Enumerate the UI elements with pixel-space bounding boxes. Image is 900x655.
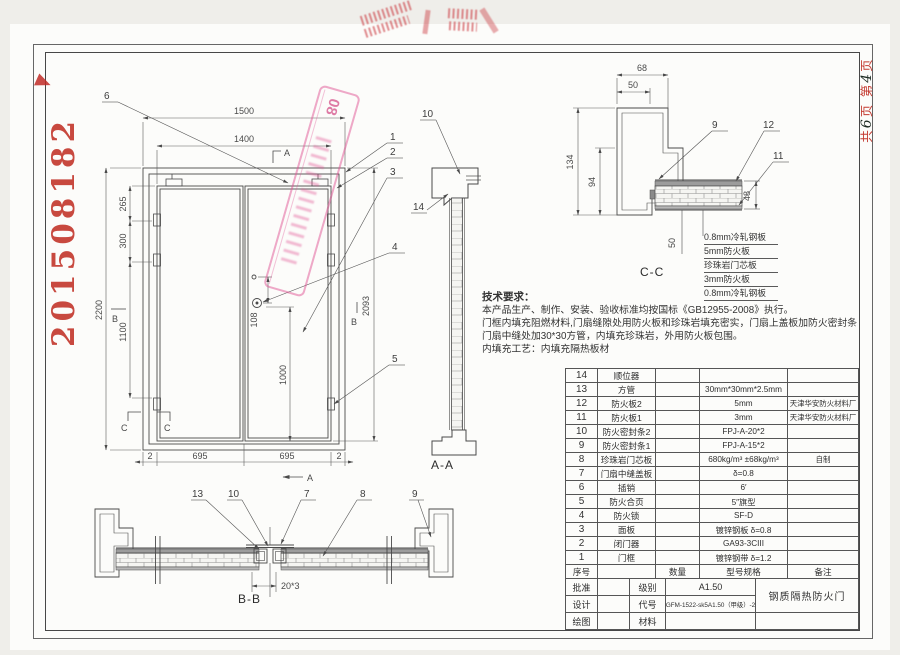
- part-spec: 680kg/m³ ±68kg/m³: [700, 453, 788, 467]
- part-no: 14: [566, 369, 598, 383]
- parts-table-row: 7 门扇中缝盖板 δ=0.8: [566, 467, 859, 481]
- header-qty: 数量: [656, 565, 700, 579]
- part-remark: [788, 509, 859, 523]
- notes-line: 门框内填充阻燃材料,门扇缝隙处用防火板和珍珠岩填充密实，门扇上盖板加防火密封条: [482, 317, 872, 330]
- part-spec: [700, 369, 788, 383]
- part-no: 10: [566, 425, 598, 439]
- parts-table-row: 12 防火板2 5mm 天津华安防火材料厂: [566, 397, 859, 411]
- part-qty: [656, 425, 700, 439]
- part-no: 9: [566, 439, 598, 453]
- red-stamp-fragment: [449, 21, 477, 31]
- part-qty: [656, 453, 700, 467]
- notes-line: 门扇中缝处加30*30方管，内填充珍珠岩，外用防火板包围。: [482, 330, 872, 343]
- part-qty: [656, 439, 700, 453]
- part-remark: [788, 439, 859, 453]
- svg-text:1100: 1100: [118, 322, 128, 341]
- part-spec: 6′: [700, 481, 788, 495]
- part-remark: [788, 383, 859, 397]
- section-bb-leader-labels: 13 10 7 8 9: [192, 489, 418, 500]
- serial-number-stamp: 201508182: [46, 97, 82, 367]
- product-name: 钢质隔热防火门: [756, 579, 859, 613]
- svg-text:68: 68: [637, 63, 647, 73]
- parts-table-row: 3 面板 镀锌钢板 δ=0.8: [566, 523, 859, 537]
- part-no: 2: [566, 537, 598, 551]
- elevation-leaders: [102, 102, 405, 404]
- part-no: 12: [566, 397, 598, 411]
- red-stamp-fragment: [448, 8, 478, 20]
- svg-text:13: 13: [192, 489, 204, 500]
- part-remark: 自制: [788, 453, 859, 467]
- svg-text:C: C: [164, 423, 171, 433]
- svg-text:695: 695: [192, 451, 207, 461]
- svg-text:B: B: [112, 314, 118, 324]
- parts-table-row: 4 防火锁 SF-D: [566, 509, 859, 523]
- part-remark: 天津华安防火材料厂: [788, 397, 859, 411]
- part-remark: [788, 495, 859, 509]
- part-no: 8: [566, 453, 598, 467]
- svg-text:3: 3: [390, 167, 396, 178]
- section-cc-title: C-C: [640, 265, 664, 279]
- svg-text:2: 2: [336, 451, 341, 461]
- svg-text:1500: 1500: [234, 106, 254, 116]
- part-spec: 镀锌钢带 δ=1.2: [700, 551, 788, 565]
- page-total-handwritten: 6: [859, 117, 875, 128]
- part-name: 面板: [598, 523, 656, 537]
- grade-value: A1.50: [666, 579, 756, 596]
- part-name: 门框: [598, 551, 656, 565]
- page-note-char: 页: [860, 57, 874, 72]
- parts-table-row: 1 门框 镀锌钢带 δ=1.2: [566, 551, 859, 565]
- cc-layer-label: 0.8mm冷轧钢板: [704, 231, 778, 245]
- cc-layer-label: 0.8mm冷轧钢板: [704, 287, 778, 301]
- draw-value: [598, 613, 630, 630]
- parts-table-row: 2 闭门器 GA93-3CIII: [566, 537, 859, 551]
- section-bb-dimension: [252, 572, 276, 592]
- part-spec: SF-D: [700, 509, 788, 523]
- svg-text:1000: 1000: [278, 365, 288, 385]
- parts-table-row: 8 珍珠岩门芯板 680kg/m³ ±68kg/m³ 自制: [566, 453, 859, 467]
- part-spec: 30mm*30mm*2.5mm: [700, 383, 788, 397]
- leader-14-label: 14: [413, 202, 425, 213]
- part-remark: [788, 481, 859, 495]
- svg-text:A: A: [284, 148, 290, 158]
- parts-table-row: 6 插销 6′: [566, 481, 859, 495]
- part-name: 防火板2: [598, 397, 656, 411]
- part-spec: 5mm: [700, 397, 788, 411]
- part-spec: 5″旗型: [700, 495, 788, 509]
- part-no: 3: [566, 523, 598, 537]
- leader-10-label: 10: [422, 109, 434, 120]
- part-no: 1: [566, 551, 598, 565]
- page-count-note: 共6页 第4页: [856, 45, 872, 155]
- part-remark: [788, 537, 859, 551]
- svg-text:C: C: [121, 423, 128, 433]
- svg-text:4: 4: [392, 242, 398, 253]
- part-name: 防火锁: [598, 509, 656, 523]
- svg-text:108: 108: [249, 312, 259, 327]
- parts-table-row: 11 防火板1 3mm 天津华安防火材料厂: [566, 411, 859, 425]
- part-name: 防火密封条2: [598, 425, 656, 439]
- notes-lines: 本产品生产、制作、安装、验收标准均按国标《GB12955-2008》执行。门框内…: [482, 304, 872, 356]
- svg-text:695: 695: [279, 451, 294, 461]
- part-qty: [656, 383, 700, 397]
- part-no: 11: [566, 411, 598, 425]
- part-name: 插销: [598, 481, 656, 495]
- svg-text:265: 265: [118, 196, 128, 211]
- svg-text:1400: 1400: [234, 134, 254, 144]
- part-qty: [656, 537, 700, 551]
- part-spec: GA93-3CIII: [700, 537, 788, 551]
- part-qty: [656, 551, 700, 565]
- page-note-char: 共: [860, 128, 874, 143]
- parts-table-row: 10 防火密封条2 FPJ-A-20*2: [566, 425, 859, 439]
- part-no: 4: [566, 509, 598, 523]
- part-spec: FPJ-A-15*2: [700, 439, 788, 453]
- parts-table-header-row: 序号 数量 型号规格 备注: [566, 565, 859, 579]
- svg-text:300: 300: [118, 233, 128, 248]
- svg-text:9: 9: [412, 489, 418, 500]
- page-note-char: 页: [860, 103, 874, 118]
- material-value: [666, 613, 756, 630]
- cc-layer-label: 珍珠岩门芯板: [704, 259, 778, 273]
- code-label: 代号: [630, 596, 666, 613]
- svg-text:2: 2: [390, 147, 396, 158]
- part-name: 防火密封条1: [598, 439, 656, 453]
- section-bb: [95, 509, 453, 597]
- part-qty: [656, 397, 700, 411]
- notes-line: 本产品生产、制作、安装、验收标准均按国标《GB12955-2008》执行。: [482, 304, 872, 317]
- cc-layer-label: 3mm防火板: [704, 273, 778, 287]
- part-spec: δ=0.8: [700, 467, 788, 481]
- material-label: 材料: [630, 613, 666, 630]
- title-block-empty-cell: [756, 613, 859, 630]
- part-qty: [656, 467, 700, 481]
- section-aa: [432, 168, 481, 455]
- grade-label: 级别: [630, 579, 666, 596]
- part-qty: [656, 481, 700, 495]
- parts-table-row: 5 防火合页 5″旗型: [566, 495, 859, 509]
- part-remark: [788, 369, 859, 383]
- part-remark: [788, 523, 859, 537]
- draw-label: 绘图: [566, 613, 598, 630]
- part-name: 方管: [598, 383, 656, 397]
- svg-text:134: 134: [565, 154, 575, 169]
- section-aa-title: A-A: [431, 458, 454, 472]
- cc-layer-labels: 0.8mm冷轧钢板5mm防火板珍珠岩门芯板3mm防火板0.8mm冷轧钢板: [704, 231, 778, 301]
- part-name: 门扇中缝盖板: [598, 467, 656, 481]
- technical-notes: 技术要求： 本产品生产、制作、安装、验收标准均按国标《GB12955-2008》…: [482, 291, 872, 356]
- part-qty: [656, 495, 700, 509]
- bb-dim-text: 20*3: [281, 581, 300, 591]
- lock-point: [252, 275, 262, 308]
- part-name: 防火板1: [598, 411, 656, 425]
- part-qty: [656, 509, 700, 523]
- part-name: 防火合页: [598, 495, 656, 509]
- svg-text:2093: 2093: [361, 296, 371, 316]
- parts-table: 14 顺位器 13 方管 30mm*30mm*2.5mm 12 防火板2 5mm…: [565, 368, 859, 579]
- notes-title: 技术要求：: [482, 291, 872, 304]
- leader-12-label: 12: [763, 120, 775, 131]
- svg-text:50: 50: [628, 80, 638, 90]
- svg-text:5: 5: [392, 354, 398, 365]
- cc-layer-label: 5mm防火板: [704, 245, 778, 259]
- part-remark: 天津华安防火材料厂: [788, 411, 859, 425]
- parts-table-row: 9 防火密封条1 FPJ-A-15*2: [566, 439, 859, 453]
- part-remark: [788, 551, 859, 565]
- title-block: 批准 级别 A1.50 钢质隔热防火门 设计 代号 GFM-1522-sk5A1…: [565, 578, 859, 630]
- parts-table-row: 13 方管 30mm*30mm*2.5mm: [566, 383, 859, 397]
- svg-text:2: 2: [147, 451, 152, 461]
- parts-table-row: 14 顺位器: [566, 369, 859, 383]
- svg-text:B: B: [351, 317, 357, 327]
- section-bb-title: B-B: [238, 592, 261, 606]
- header-name: [598, 565, 656, 579]
- svg-text:94: 94: [587, 177, 597, 187]
- svg-text:50: 50: [667, 238, 677, 248]
- part-no: 6: [566, 481, 598, 495]
- svg-text:7: 7: [304, 489, 310, 500]
- svg-text:A: A: [307, 473, 313, 483]
- part-remark: [788, 467, 859, 481]
- svg-text:2200: 2200: [94, 300, 104, 320]
- part-spec: FPJ-A-20*2: [700, 425, 788, 439]
- approve-label: 批准: [566, 579, 598, 596]
- part-no: 5: [566, 495, 598, 509]
- part-name: 顺位器: [598, 369, 656, 383]
- code-value: GFM-1522-sk5A1.50（甲级）-2: [666, 596, 756, 613]
- svg-text:10: 10: [228, 489, 240, 500]
- svg-text:1: 1: [390, 132, 396, 143]
- leader-9-label: 9: [712, 120, 718, 131]
- leader-11-label: 11: [773, 151, 784, 162]
- svg-text:6: 6: [104, 91, 110, 102]
- approve-value: [598, 579, 630, 596]
- svg-text:8: 8: [360, 489, 366, 500]
- page-current-handwritten: 4: [859, 72, 875, 83]
- header-remark: 备注: [788, 565, 859, 579]
- part-no: 7: [566, 467, 598, 481]
- part-no: 13: [566, 383, 598, 397]
- part-name: 珍珠岩门芯板: [598, 453, 656, 467]
- part-qty: [656, 369, 700, 383]
- design-value: [598, 596, 630, 613]
- header-spec: 型号规格: [700, 565, 788, 579]
- section-cc-dimension-text: 68 50 134 94 48 50: [565, 63, 752, 248]
- part-qty: [656, 411, 700, 425]
- part-name: 闭门器: [598, 537, 656, 551]
- parts-table-body: 14 顺位器 13 方管 30mm*30mm*2.5mm 12 防火板2 5mm…: [566, 369, 859, 565]
- part-remark: [788, 425, 859, 439]
- part-spec: 镀锌钢板 δ=0.8: [700, 523, 788, 537]
- design-label: 设计: [566, 596, 598, 613]
- part-qty: [656, 523, 700, 537]
- header-no: 序号: [566, 565, 598, 579]
- notes-line: 内填充工艺：内填充隔热板材: [482, 343, 872, 356]
- part-spec: 3mm: [700, 411, 788, 425]
- scanned-fire-door-drawing: { "sheet": { "serial_number": "201508182…: [0, 0, 900, 655]
- page-note-char: 第: [860, 83, 874, 98]
